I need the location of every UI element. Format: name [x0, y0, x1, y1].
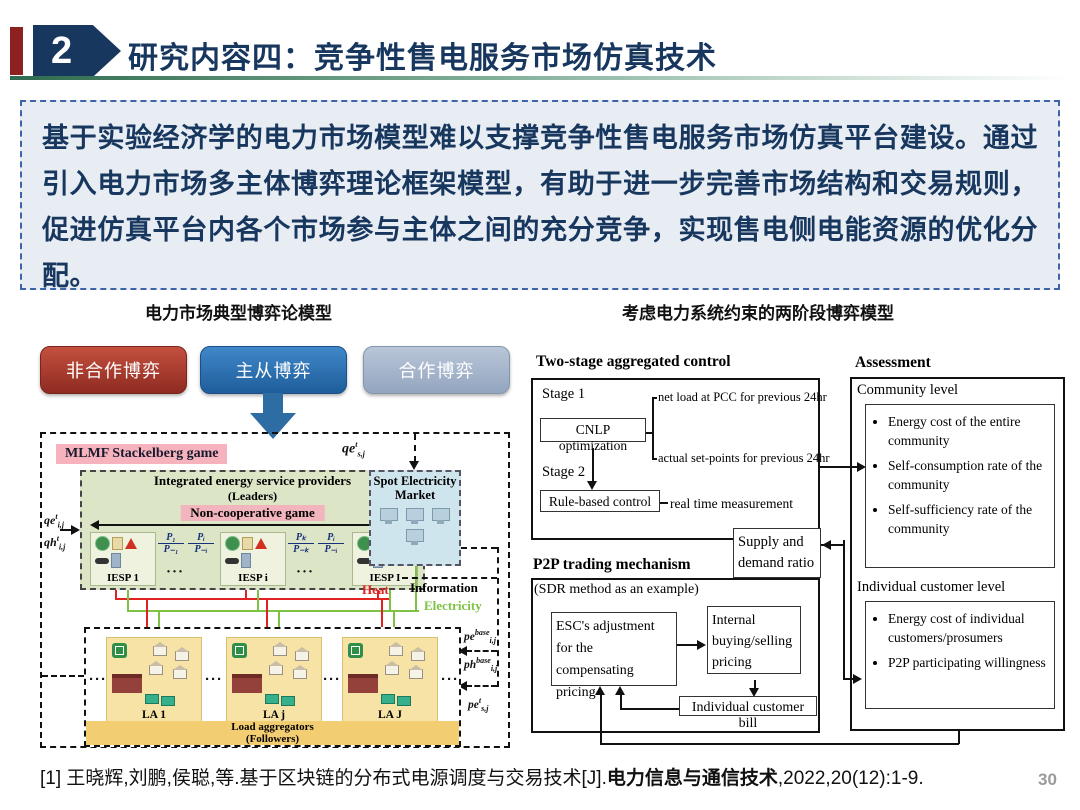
heat-line: [381, 598, 383, 627]
esc-box: ESC's adjustment for the compensating pr…: [551, 612, 677, 686]
computer-icon: [406, 508, 424, 521]
price-fraction: PᵢP₋ᵢ: [318, 532, 344, 555]
charger-icon: [348, 643, 363, 658]
heat-bus: [115, 598, 390, 600]
la-label: LA 1: [107, 709, 201, 721]
electricity-line: [393, 610, 395, 627]
heat-line: [146, 598, 148, 627]
storage-icon: [112, 537, 123, 550]
electricity-line: [257, 590, 259, 612]
iesp-cell-1: IESP 1: [90, 532, 156, 586]
slide: 2 研究内容四：竞争性售电服务市场仿真技术 基于实验经济学的电力市场模型难以支撑…: [0, 0, 1080, 810]
arrowhead: [853, 674, 862, 684]
internal-pricing-box: Internal buying/selling pricing: [707, 606, 801, 674]
computer-icon: [406, 529, 424, 542]
net-load-label: net load at PCC for previous 24hr: [658, 390, 827, 405]
iesp-icons: [221, 533, 285, 571]
line: [42, 675, 84, 677]
reference-journal: 电力信息与通信技术: [607, 768, 778, 789]
list-item: Energy cost of the entire community: [888, 412, 1050, 450]
community-list-box: Energy cost of the entire community Self…: [865, 404, 1055, 568]
renewable-icon: [95, 536, 110, 551]
button-stackelberg-game[interactable]: 主从博弈: [200, 346, 347, 394]
renewable-icon: [225, 536, 240, 551]
electricity-line: [389, 590, 391, 612]
electricity-bus: [127, 610, 419, 612]
factory-icon: [348, 674, 378, 693]
section-number: 2: [51, 30, 72, 73]
assessment-box: Community level Energy cost of the entir…: [850, 377, 1065, 731]
button-cooperative-game[interactable]: 合作博弈: [363, 346, 510, 394]
vehicle-icon: [95, 558, 109, 564]
noncooperative-label: Non-cooperative game: [180, 505, 325, 521]
reference: [1] 王晓辉,刘鹏,侯聪,等.基于区块链的分布式电源调度与交易技术[J].电力…: [40, 763, 924, 790]
reference-suffix: ,2022,20(12):1-9.: [778, 768, 924, 789]
vehicle-icon: [225, 558, 239, 564]
list-item: Energy cost of individual customers/pros…: [888, 609, 1050, 647]
list-item: Self-sufficiency rate of the community: [888, 500, 1050, 538]
stage2-label: Stage 2: [542, 464, 585, 481]
computer-icon: [380, 508, 398, 521]
la-cell-j: LA j: [226, 637, 322, 723]
line: [652, 397, 657, 399]
individual-list: Energy cost of individual customers/pros…: [888, 609, 1050, 672]
storage-icon: [242, 537, 253, 550]
math-label-qe-top: qets,j: [342, 440, 365, 458]
stage1-label: Stage 1: [542, 386, 585, 403]
line: [94, 524, 415, 526]
line: [677, 644, 699, 646]
ellipsis: ···: [441, 671, 459, 688]
page-title: 研究内容四：竞争性售电服务市场仿真技术: [128, 33, 717, 77]
line: [592, 448, 594, 482]
information-line: [497, 547, 499, 687]
electricity-line: [127, 590, 129, 612]
reference-prefix: [1] 王晓辉,刘鹏,侯聪,等.基于区块链的分布式电源调度与交易技术[J].: [40, 768, 607, 789]
building-icon: [241, 553, 251, 568]
iesp-label: IESP 1: [91, 572, 155, 584]
charger-icon: [112, 643, 127, 658]
information-label: Information: [410, 580, 478, 596]
house-icon: [293, 669, 307, 679]
two-stage-flowchart: Two-stage aggregated control Stage 1 CNL…: [530, 350, 1075, 750]
ellipsis: ···: [166, 564, 184, 581]
arrowhead: [71, 525, 80, 535]
assessment-title: Assessment: [855, 354, 931, 372]
solar-panel-icon: [281, 696, 295, 706]
spot-market-title: Spot Electricity Market: [371, 474, 459, 502]
la-cell-1: LA 1: [106, 637, 202, 723]
line: [620, 694, 622, 708]
button-noncooperative-game[interactable]: 非合作博弈: [40, 346, 187, 394]
flow-title: Two-stage aggregated control: [536, 353, 731, 371]
supply-demand-box: Supply and demand ratio: [733, 528, 821, 578]
line: [414, 434, 416, 462]
charger-icon: [232, 643, 247, 658]
solar-panel-icon: [161, 696, 175, 706]
arrowhead: [595, 686, 605, 695]
arrowhead: [697, 640, 706, 650]
page-number: 30: [1038, 770, 1057, 790]
arrowhead: [615, 686, 625, 695]
house-icon: [149, 665, 163, 675]
la-label: LA J: [343, 709, 437, 721]
ellipsis: ···: [89, 671, 107, 688]
house-icon: [409, 669, 423, 679]
la-cell-J: LA J: [342, 637, 438, 723]
arrowhead: [587, 481, 597, 490]
math-label-pe-base: pebasei,j: [464, 628, 496, 645]
solar-panel-icon: [381, 694, 395, 704]
arrowhead: [409, 461, 419, 470]
line: [652, 397, 654, 459]
electricity-line: [278, 610, 280, 627]
line: [466, 650, 497, 652]
ellipsis: ···: [296, 564, 314, 581]
price-fraction: PᵢP₋ᵢ: [188, 532, 214, 555]
warning-icon: [255, 538, 267, 549]
arrowhead: [90, 520, 99, 530]
house-icon: [295, 651, 309, 661]
house-icon: [273, 646, 287, 656]
ellipsis: ···: [323, 671, 341, 688]
line: [820, 466, 861, 468]
computer-icon: [432, 508, 450, 521]
solar-panel-icon: [145, 694, 159, 704]
la-bar-title: Load aggregators: [86, 721, 459, 733]
iesp-cell-i: IESP i: [220, 532, 286, 586]
information-line: [461, 547, 497, 549]
la-label: LA j: [227, 709, 321, 721]
set-points-label: actual set-points for previous 24hr: [658, 451, 829, 466]
line: [466, 685, 497, 687]
factory-icon: [112, 674, 142, 693]
summary-box: 基于实验经济学的电力市场模型难以支撑竞争性售电服务市场仿真平台建设。通过引入电力…: [20, 100, 1060, 290]
iesp-label: IESP i: [221, 572, 285, 584]
market-computers: [371, 508, 459, 542]
individual-list-box: Energy cost of individual customers/pros…: [865, 601, 1055, 709]
line: [600, 694, 602, 744]
line: [843, 540, 845, 680]
price-fraction: PₖP₋ₖ: [288, 532, 314, 555]
sdr-label: (SDR method as an example): [534, 582, 699, 598]
header-red-bar: [10, 27, 23, 75]
right-section-title: 考虑电力系统约束的两阶段博弈模型: [622, 299, 894, 324]
realtime-label: real time measurement: [670, 496, 793, 512]
heat-label: Heat: [362, 582, 389, 598]
math-label-qe-left: qeti,j: [44, 512, 64, 529]
line: [600, 743, 959, 745]
solar-panel-icon: [397, 696, 411, 706]
section-number-badge: 2: [33, 25, 121, 77]
electricity-line: [158, 610, 160, 627]
line: [660, 502, 668, 504]
house-icon: [269, 665, 283, 675]
rule-based-box: Rule-based control: [540, 490, 660, 512]
community-list: Energy cost of the entire community Self…: [888, 412, 1050, 538]
community-level-label: Community level: [857, 382, 958, 399]
left-section-title: 电力市场典型博弈论模型: [145, 299, 332, 324]
information-line: [402, 577, 497, 579]
individual-level-label: Individual customer level: [857, 579, 1005, 596]
math-label-ph-base: phbasei,j: [464, 656, 497, 673]
header-divider: [10, 76, 1070, 80]
house-icon: [385, 665, 399, 675]
load-aggregators-box: LA 1 LA j LA J ··· ··· ··· ··· Load ag: [84, 627, 461, 747]
heat-line: [266, 598, 268, 627]
building-icon: [111, 553, 121, 568]
stackelberg-diagram: MLMF Stackelberg game qets,j Integrated …: [40, 432, 510, 748]
solar-panel-icon: [265, 694, 279, 704]
iesp-icons: [91, 533, 155, 571]
house-icon: [411, 651, 425, 661]
math-label-qh-left: qhti,j: [44, 534, 65, 551]
math-label-pe-t: pets,j: [468, 696, 488, 713]
factory-icon: [232, 674, 262, 693]
la-bar-subtitle: (Followers): [86, 733, 459, 745]
game-label: MLMF Stackelberg game: [56, 444, 227, 464]
list-item: P2P participating willingness: [888, 653, 1050, 672]
arrowhead: [822, 540, 831, 550]
cnlp-box: CNLP optimization: [540, 418, 646, 442]
arrowhead: [857, 462, 866, 472]
line: [652, 458, 657, 460]
electricity-label: Electricity: [424, 598, 482, 614]
customer-bill-box: Individual customer bill: [679, 696, 817, 716]
spot-market-box: Spot Electricity Market: [369, 470, 461, 566]
house-icon: [173, 669, 187, 679]
load-aggregators-bar: Load aggregators (Followers): [86, 721, 459, 745]
house-icon: [175, 651, 189, 661]
warning-icon: [125, 538, 137, 549]
ellipsis: ···: [205, 671, 223, 688]
list-item: Self-consumption rate of the community: [888, 456, 1050, 494]
p2p-title: P2P trading mechanism: [533, 556, 691, 574]
price-fraction: P₁P₋₁: [158, 532, 184, 555]
line: [620, 708, 679, 710]
house-icon: [389, 646, 403, 656]
house-icon: [153, 646, 167, 656]
